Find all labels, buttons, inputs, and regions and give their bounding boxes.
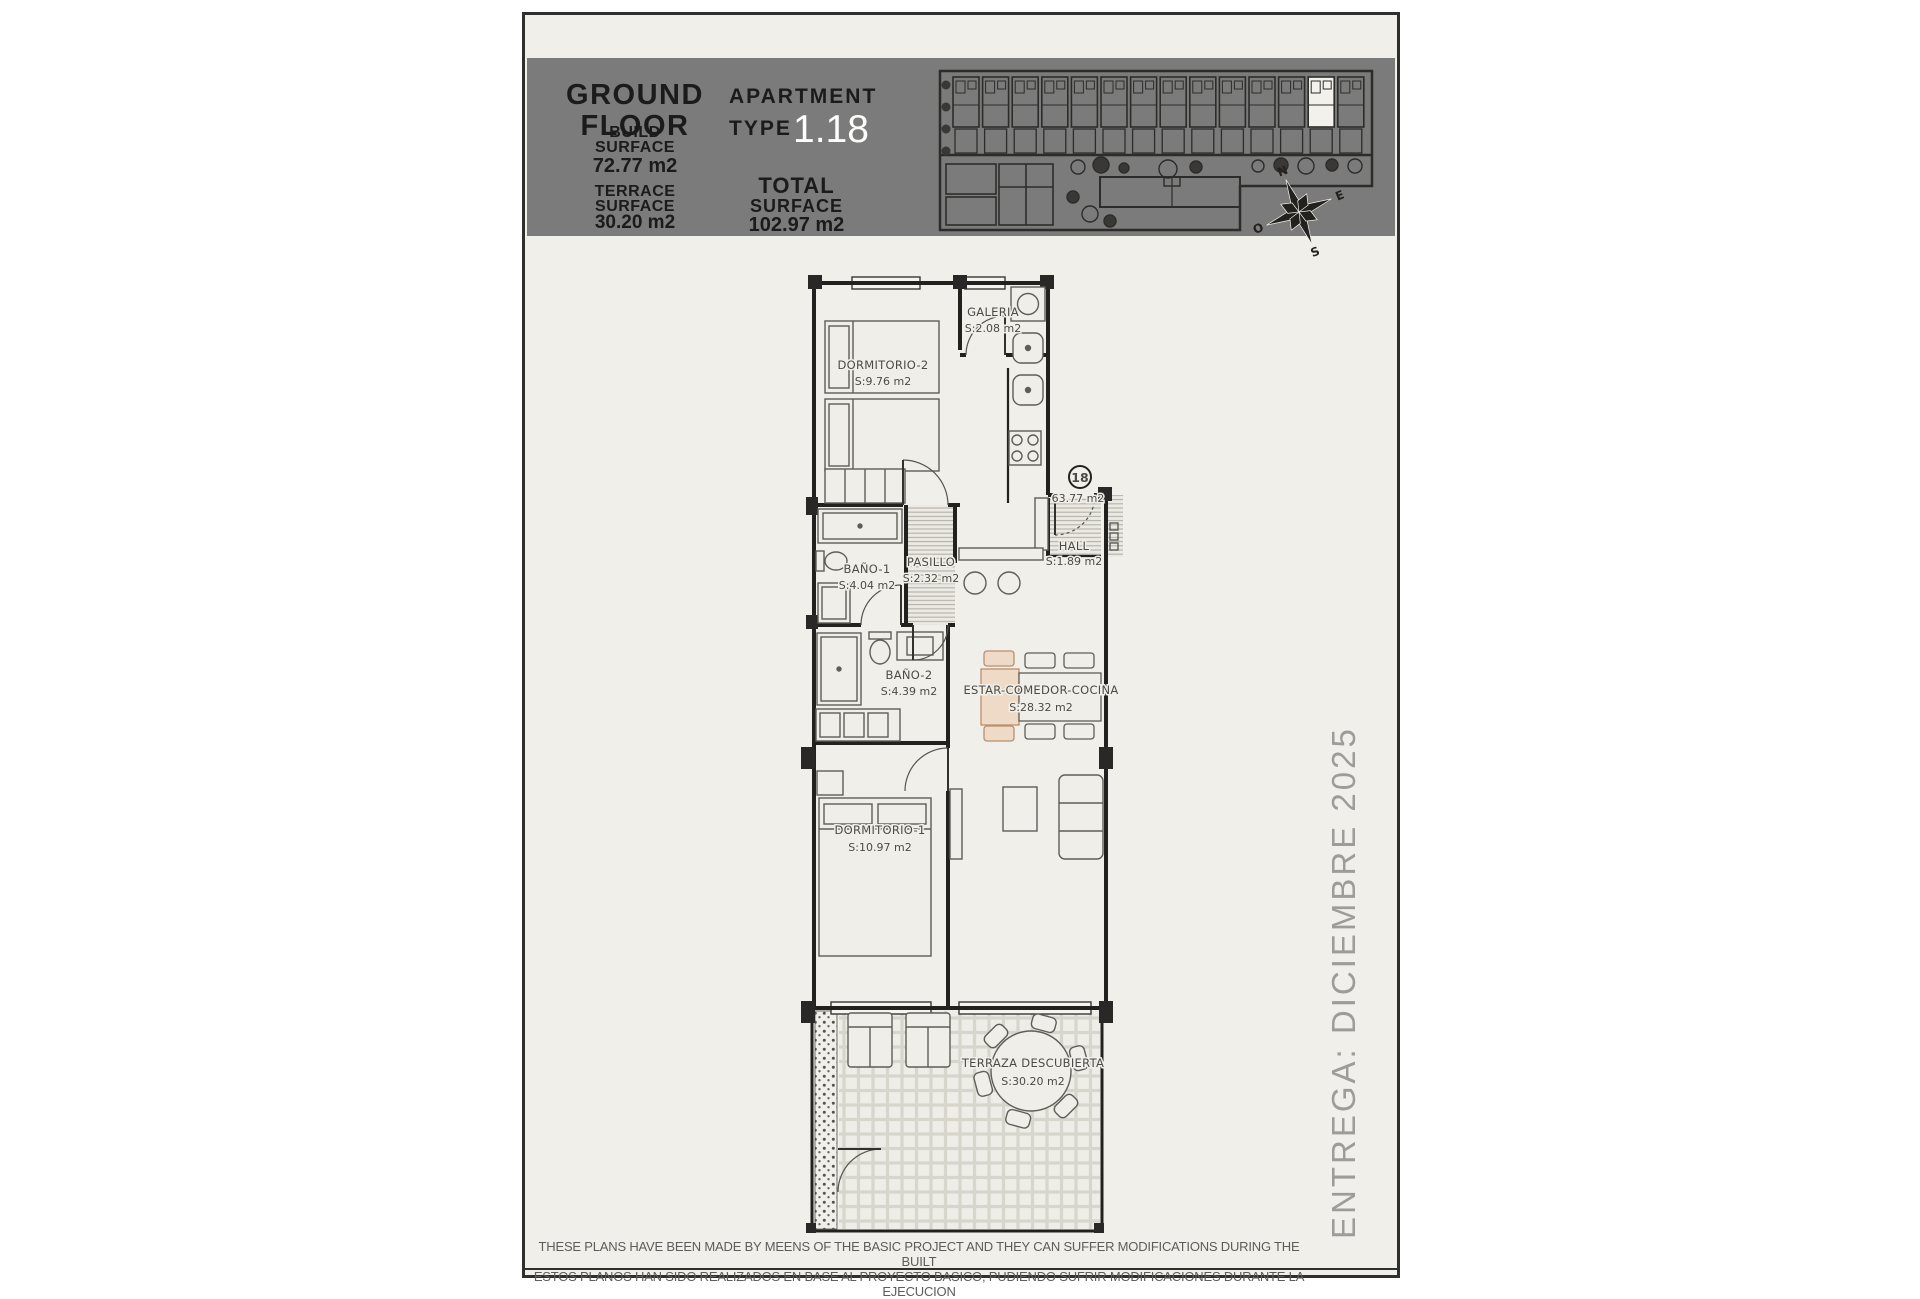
stool-icon	[964, 572, 986, 594]
screenshot-canvas: { "header": { "floor_title": "GROUND FLO…	[0, 0, 1920, 1280]
toilet2-icon	[870, 640, 890, 664]
dining-chair-icon	[1025, 724, 1055, 739]
coffee-table-icon	[1003, 787, 1037, 831]
svg-text:S:1.89 m2: S:1.89 m2	[1046, 555, 1102, 568]
toilet2-tank-icon	[869, 632, 891, 639]
build-surface-label: BUILD SURFACE	[535, 125, 735, 155]
compass-south-label: S	[1308, 244, 1321, 260]
dining-chair-icon	[1025, 653, 1055, 668]
apartment-label: APARTMENT	[729, 85, 914, 109]
unit-number-text: 18	[1071, 470, 1088, 485]
floor-plan-drawing: 18 63.77 m2 DORMITORIO-2 S:9.76 m2 GALER…	[781, 243, 1151, 1243]
vanity-icon	[897, 632, 943, 660]
stool-icon	[998, 572, 1020, 594]
terrace-table-icon	[991, 1031, 1071, 1111]
room-label-dormitorio2: DORMITORIO-2	[837, 358, 928, 372]
fridge-icon	[1035, 498, 1048, 550]
svg-text:S:30.20 m2: S:30.20 m2	[1001, 1075, 1064, 1088]
svg-text:S:2.32 m2: S:2.32 m2	[903, 572, 959, 585]
room-label-terraza: TERRAZA DESCUBIERTA	[961, 1056, 1104, 1070]
room-label-dormitorio1: DORMITORIO-1	[834, 823, 925, 837]
terrace-surface-value: 30.20 m2	[535, 212, 735, 234]
floor-title-line1: GROUND	[566, 79, 704, 111]
footer-line-en: THESE PLANS HAVE BEEN MADE BY MEENS OF T…	[525, 1239, 1313, 1269]
room-label-bano2: BAÑO-2	[886, 667, 933, 682]
dining-chair-icon	[1064, 724, 1094, 739]
compass-north-label: N	[1275, 166, 1290, 180]
site-plan-pool-icon	[1100, 177, 1240, 207]
svg-text:S:4.04 m2: S:4.04 m2	[839, 579, 895, 592]
svg-text:S:4.39 m2: S:4.39 m2	[881, 685, 937, 698]
toilet1-tank-icon	[816, 551, 824, 571]
apartment-type-value: 1.18	[793, 108, 903, 152]
compass-east-label: E	[1333, 187, 1346, 203]
terrace-hedge	[815, 1011, 837, 1229]
room-label-pasillo: PASILLO	[907, 555, 955, 569]
floor-plan-page: GROUND FLOOR BUILD SURFACE 72.77 m2 TERR…	[522, 12, 1400, 1278]
site-plan-units	[953, 77, 1364, 153]
build-surface-value: 72.77 m2	[535, 155, 735, 178]
room-label-hall: HALL	[1059, 539, 1090, 553]
sofa-icon	[1059, 775, 1103, 859]
total-surface-label1: TOTAL	[729, 176, 864, 195]
svg-text:S:28.32 m2: S:28.32 m2	[1009, 701, 1072, 714]
dining-table-peach-icon	[981, 669, 1019, 725]
room-label-galeria: GALERIA	[967, 305, 1019, 319]
svg-text:S:10.97 m2: S:10.97 m2	[848, 841, 911, 854]
site-plan-left-trees-icon	[942, 81, 951, 156]
dining-chair-peach-icon	[984, 651, 1014, 666]
dining-chair-icon	[1064, 653, 1094, 668]
total-surface-value: 102.97 m2	[729, 214, 864, 237]
footer-line-es: ESTOS PLANOS HAN SIDO REALIZADOS EN BASE…	[525, 1269, 1313, 1299]
delivery-date-note: ENTREGA: DICIEMBRE 2025	[1325, 777, 1367, 1239]
room-label-bano1: BAÑO-1	[844, 561, 891, 576]
compass-rose-icon: N E S O	[1251, 166, 1347, 262]
kitchen-counter-icon	[959, 548, 1043, 560]
dining-chair-peach-icon	[984, 726, 1014, 741]
tv-unit-icon	[950, 789, 962, 859]
footer-rule	[525, 1268, 1397, 1270]
compass-west-label: O	[1251, 220, 1266, 237]
room-label-estar: ESTAR-COMEDOR-COCINA	[963, 683, 1118, 697]
svg-text:S:9.76 m2: S:9.76 m2	[855, 375, 911, 388]
svg-text:S:2.08 m2: S:2.08 m2	[965, 322, 1021, 335]
terrace-surface-label: TERRACE SURFACE	[535, 184, 735, 214]
site-plan-building-cluster	[946, 164, 1053, 225]
useful-area-text: 63.77 m2	[1052, 492, 1105, 505]
nightstand-icon	[817, 771, 843, 795]
